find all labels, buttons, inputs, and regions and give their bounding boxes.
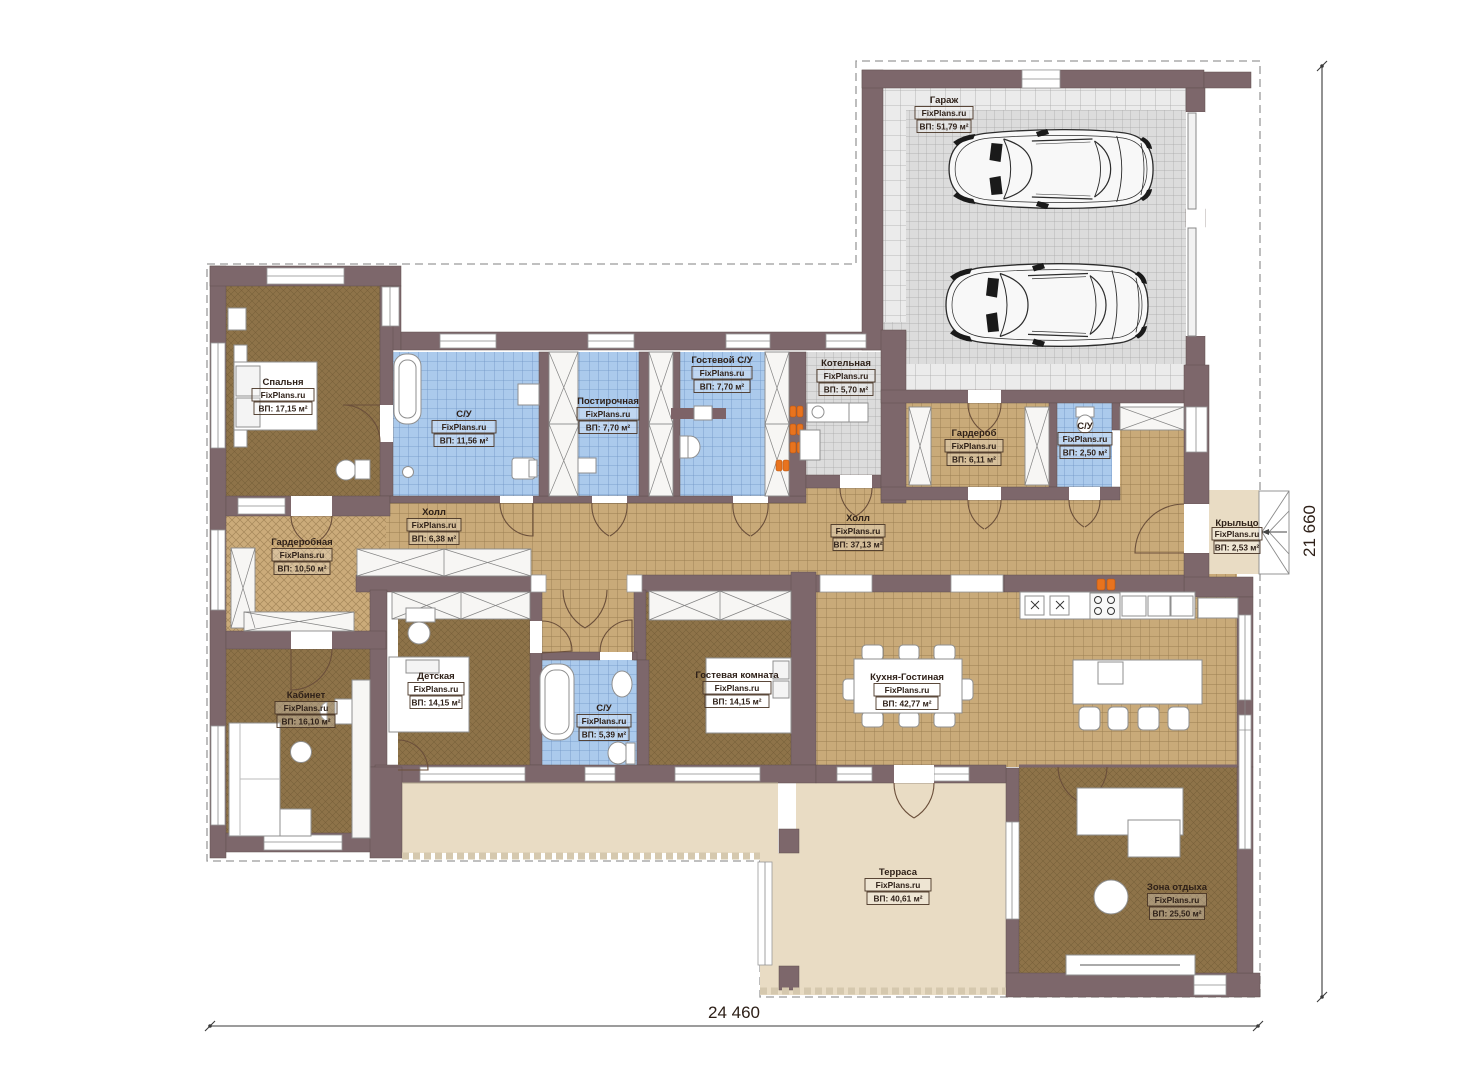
svg-text:24 460: 24 460 (708, 1003, 760, 1022)
svg-text:FixPlans.ru: FixPlans.ru (715, 683, 760, 693)
svg-text:С/У: С/У (456, 409, 472, 420)
svg-text:ВП: 37,13 м²: ВП: 37,13 м² (834, 540, 883, 550)
svg-text:FixPlans.ru: FixPlans.ru (836, 526, 881, 536)
svg-text:FixPlans.ru: FixPlans.ru (284, 703, 329, 713)
svg-text:ВП: 7,70 м²: ВП: 7,70 м² (586, 423, 631, 433)
svg-text:Холл: Холл (422, 507, 446, 518)
svg-text:Кабинет: Кабинет (287, 690, 326, 701)
svg-text:Кухня-Гостиная: Кухня-Гостиная (870, 672, 944, 683)
svg-text:ВП: 11,56 м²: ВП: 11,56 м² (440, 436, 489, 446)
svg-text:ВП: 14,15 м²: ВП: 14,15 м² (412, 698, 461, 708)
svg-text:FixPlans.ru: FixPlans.ru (1215, 529, 1260, 539)
svg-text:ВП: 5,39 м²: ВП: 5,39 м² (582, 730, 627, 740)
svg-text:Постирочная: Постирочная (577, 396, 639, 407)
svg-text:Зона отдыха: Зона отдыха (1147, 882, 1208, 893)
svg-text:ВП: 6,11 м²: ВП: 6,11 м² (952, 455, 996, 465)
svg-text:ВП: 42,77 м²: ВП: 42,77 м² (883, 699, 932, 709)
svg-text:ВП: 6,38 м²: ВП: 6,38 м² (412, 534, 457, 544)
svg-text:FixPlans.ru: FixPlans.ru (876, 880, 921, 890)
svg-text:ВП: 17,15 м²: ВП: 17,15 м² (259, 404, 308, 414)
svg-text:FixPlans.ru: FixPlans.ru (412, 520, 457, 530)
svg-text:FixPlans.ru: FixPlans.ru (261, 390, 306, 400)
svg-text:Гостевая комната: Гостевая комната (695, 670, 779, 681)
svg-text:Холл: Холл (846, 513, 870, 524)
svg-text:С/У: С/У (1077, 421, 1093, 432)
svg-text:Терраса: Терраса (879, 867, 918, 878)
svg-text:FixPlans.ru: FixPlans.ru (1155, 895, 1200, 905)
svg-text:С/У: С/У (596, 703, 612, 714)
svg-text:FixPlans.ru: FixPlans.ru (885, 685, 930, 695)
svg-text:ВП: 25,50 м²: ВП: 25,50 м² (1153, 909, 1202, 919)
svg-text:FixPlans.ru: FixPlans.ru (582, 716, 627, 726)
svg-text:Спальня: Спальня (262, 377, 303, 388)
svg-text:FixPlans.ru: FixPlans.ru (280, 550, 325, 560)
svg-text:ВП: 7,70 м²: ВП: 7,70 м² (700, 382, 745, 392)
svg-text:Гардероб: Гардероб (952, 428, 997, 439)
svg-text:Гараж: Гараж (930, 95, 959, 106)
svg-text:Гостевой С/У: Гостевой С/У (691, 355, 752, 366)
svg-text:ВП: 14,15 м²: ВП: 14,15 м² (713, 697, 762, 707)
svg-text:ВП: 2,50 м²: ВП: 2,50 м² (1063, 448, 1108, 458)
svg-text:FixPlans.ru: FixPlans.ru (1063, 434, 1108, 444)
svg-text:Котельная: Котельная (821, 358, 871, 369)
svg-text:ВП: 2,53 м²: ВП: 2,53 м² (1215, 543, 1260, 553)
svg-text:FixPlans.ru: FixPlans.ru (414, 684, 459, 694)
svg-text:ВП: 51,79 м²: ВП: 51,79 м² (920, 122, 969, 132)
svg-text:ВП: 16,10 м²: ВП: 16,10 м² (282, 717, 331, 727)
svg-text:21 660: 21 660 (1300, 505, 1319, 557)
svg-text:ВП: 10,50 м²: ВП: 10,50 м² (278, 564, 327, 574)
svg-text:FixPlans.ru: FixPlans.ru (700, 368, 745, 378)
svg-text:Детская: Детская (417, 671, 454, 682)
svg-text:Гардеробная: Гардеробная (271, 537, 332, 548)
svg-text:FixPlans.ru: FixPlans.ru (824, 371, 869, 381)
svg-text:FixPlans.ru: FixPlans.ru (952, 441, 997, 451)
svg-text:FixPlans.ru: FixPlans.ru (442, 422, 487, 432)
svg-text:ВП: 40,61 м²: ВП: 40,61 м² (874, 894, 923, 904)
svg-text:FixPlans.ru: FixPlans.ru (586, 409, 631, 419)
svg-text:ВП: 5,70 м²: ВП: 5,70 м² (824, 385, 869, 395)
svg-text:FixPlans.ru: FixPlans.ru (922, 108, 967, 118)
